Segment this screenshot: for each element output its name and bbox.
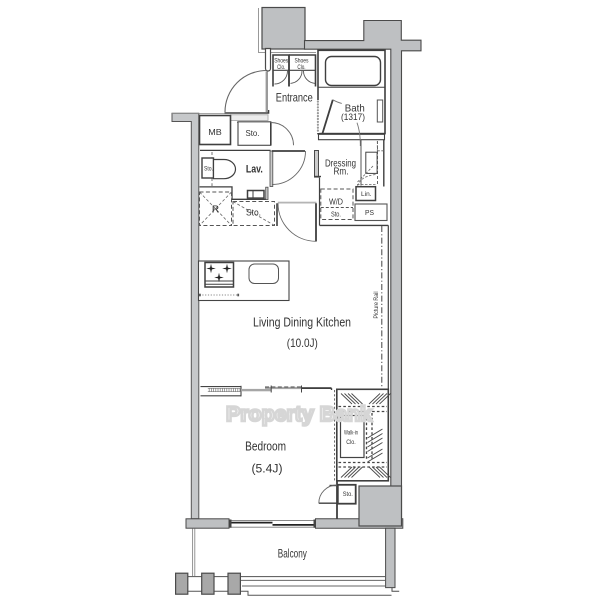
svg-text:(5.4J): (5.4J): [252, 463, 283, 475]
svg-text:Clo.: Clo.: [346, 439, 356, 446]
svg-text:Sto.: Sto.: [204, 166, 213, 173]
svg-text:Lav.: Lav.: [246, 163, 263, 175]
svg-text:Rm.: Rm.: [334, 166, 349, 178]
svg-text:Sto.: Sto.: [343, 491, 353, 498]
svg-text:PS: PS: [365, 208, 374, 217]
svg-text:MB: MB: [208, 128, 222, 137]
svg-text:W/D: W/D: [329, 197, 343, 206]
svg-text:Living Dining Kitchen: Living Dining Kitchen: [253, 314, 351, 329]
svg-text:Sto.: Sto.: [331, 209, 341, 218]
svg-text:(10.0J): (10.0J): [287, 336, 318, 350]
svg-text:R: R: [212, 205, 219, 216]
svg-text:(1317): (1317): [341, 112, 365, 122]
svg-text:Lin.: Lin.: [361, 191, 372, 198]
svg-text:Walk-in: Walk-in: [344, 429, 358, 436]
svg-text:Property Bank: Property Bank: [226, 402, 372, 426]
svg-text:Bedroom: Bedroom: [245, 440, 286, 454]
svg-text:Picture Rail: Picture Rail: [374, 292, 380, 319]
svg-text:Sto.: Sto.: [246, 129, 260, 138]
svg-text:Clo.: Clo.: [297, 64, 305, 71]
svg-text:Entrance: Entrance: [276, 91, 313, 105]
svg-text:Clo.: Clo.: [277, 64, 285, 71]
svg-text:Balcony: Balcony: [278, 546, 308, 560]
svg-text:Sto.: Sto.: [246, 208, 261, 218]
